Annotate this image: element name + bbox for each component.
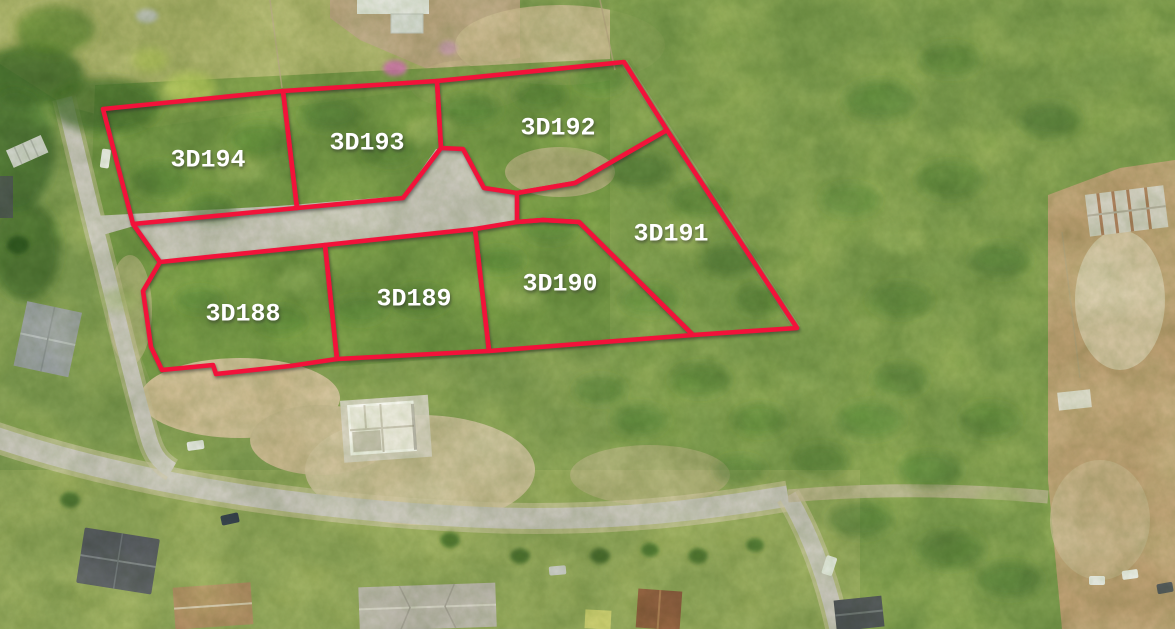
boat <box>136 9 158 23</box>
unfinished-building <box>340 395 432 463</box>
parcel-label-3d194: 3D194 <box>170 146 245 175</box>
aerial-photo: 3D1943D1933D1923D1913D1903D1893D188 <box>0 0 1175 629</box>
sand-patch <box>1050 460 1150 580</box>
house-roof <box>76 527 160 594</box>
palm-tree <box>746 538 764 552</box>
house-roof <box>357 0 429 14</box>
palm-tree <box>440 532 460 548</box>
parcel-label-3d188: 3D188 <box>205 300 280 329</box>
parcel-label-3d189: 3D189 <box>376 285 451 314</box>
house-roof <box>0 176 13 218</box>
house-roof <box>173 582 254 629</box>
parcel-label-3d190: 3D190 <box>522 270 597 299</box>
palm-tree <box>590 548 610 564</box>
house-roof <box>358 583 496 629</box>
bougainvillea <box>439 41 457 55</box>
house-roof <box>834 596 885 629</box>
palm-tree <box>510 548 530 564</box>
house-roof <box>584 609 611 629</box>
aerial-parcel-map: 3D1943D1933D1923D1913D1903D1893D188 <box>0 0 1175 629</box>
parcel-label-3d192: 3D192 <box>520 114 595 143</box>
palm-tree <box>688 548 708 564</box>
sand-patch <box>1075 230 1165 370</box>
palm-tree <box>641 543 659 557</box>
canopy <box>391 14 423 33</box>
shed-roof <box>1057 389 1092 410</box>
house-roof <box>636 589 683 629</box>
palm-tree <box>60 492 80 508</box>
car <box>549 565 567 575</box>
car <box>1089 576 1105 585</box>
bougainvillea <box>383 60 407 76</box>
palm-tree <box>7 236 29 254</box>
parcel-label-3d193: 3D193 <box>329 129 404 158</box>
parcel-label-3d191: 3D191 <box>633 220 708 249</box>
